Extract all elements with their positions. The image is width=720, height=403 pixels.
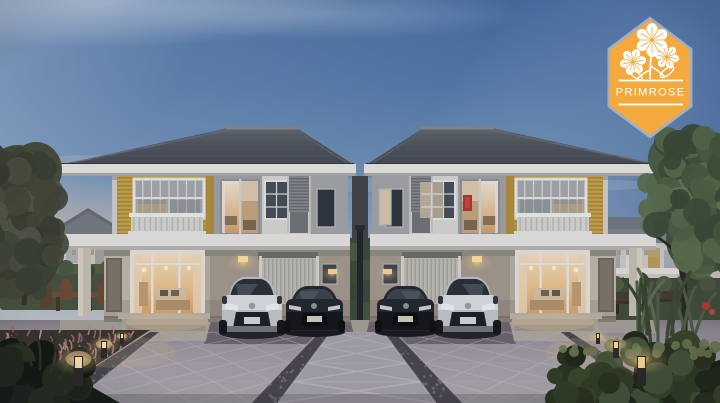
svg-text:PRIMROSE: PRIMROSE (616, 87, 686, 99)
